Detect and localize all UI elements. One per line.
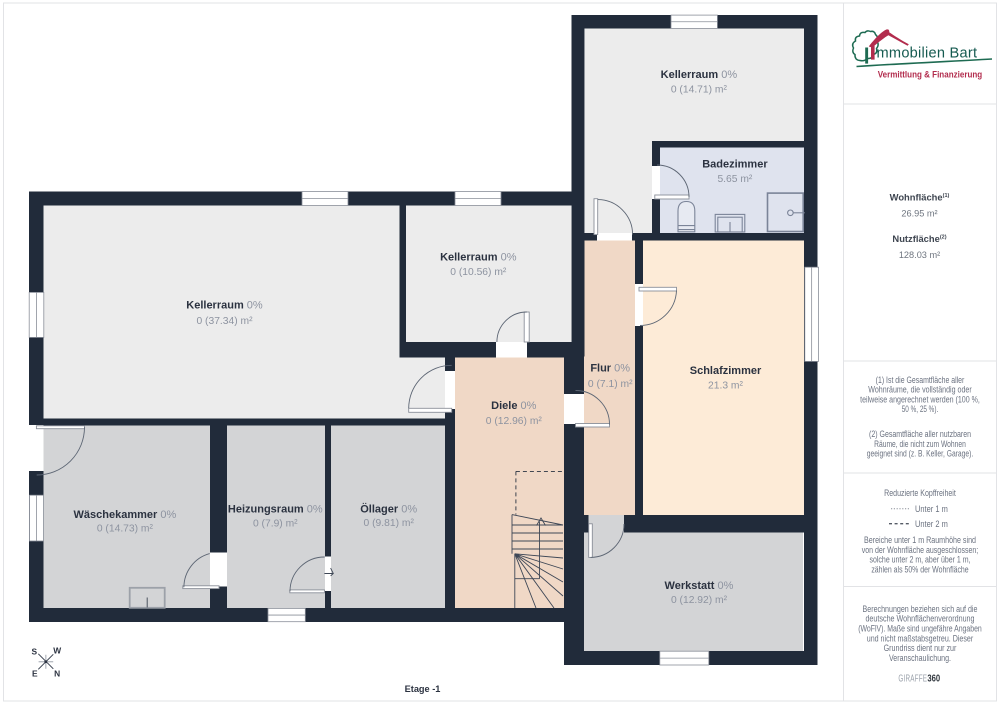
svg-text:Schlafzimmer: Schlafzimmer [690, 365, 762, 377]
svg-text:5.65 m²: 5.65 m² [717, 174, 752, 185]
svg-text:N: N [54, 668, 60, 678]
svg-text:(WoFlV). Maße sind ungefähre A: (WoFlV). Maße sind ungefähre Angaben [858, 624, 982, 634]
svg-text:0 (37.34) m²: 0 (37.34) m² [196, 316, 253, 327]
svg-text:Werkstatt 0%: Werkstatt 0% [665, 580, 734, 592]
svg-text:0 (7.1) m²: 0 (7.1) m² [588, 379, 633, 390]
svg-text:E: E [32, 668, 38, 678]
svg-text:W: W [53, 645, 61, 655]
svg-text:deutsche Wohnflächenverordnung: deutsche Wohnflächenverordnung [865, 614, 974, 624]
svg-text:S: S [32, 646, 38, 656]
svg-text:mmobilien Bart: mmobilien Bart [877, 46, 978, 62]
svg-text:0 (10.56) m²: 0 (10.56) m² [450, 267, 507, 278]
svg-text:Berechnungen beziehen sich auf: Berechnungen beziehen sich auf die [863, 604, 978, 614]
svg-text:Vermittlung & Finanzierung: Vermittlung & Finanzierung [878, 70, 983, 81]
svg-text:Unter 1 m: Unter 1 m [915, 504, 948, 514]
svg-text:50 %, 25 %).: 50 %, 25 %). [902, 404, 939, 414]
svg-text:Flur 0%: Flur 0% [590, 363, 630, 375]
svg-text:Öllager 0%: Öllager 0% [360, 502, 417, 515]
svg-text:Grundriss dient nur zur: Grundriss dient nur zur [884, 643, 957, 653]
svg-text:solche unter 2 m, aber über 1: solche unter 2 m, aber über 1 m, [870, 555, 971, 565]
svg-text:Wohnräume, die vollständig ode: Wohnräume, die vollständig oder [868, 385, 971, 395]
svg-text:Wohnfläche(1): Wohnfläche(1) [890, 191, 950, 202]
svg-text:360: 360 [927, 674, 940, 685]
svg-text:(1) Ist die Gesamtfläche aller: (1) Ist die Gesamtfläche aller [876, 375, 965, 385]
svg-text:0 (9.81) m²: 0 (9.81) m² [364, 518, 415, 529]
svg-text:von der Wohnfläche ausgeschlos: von der Wohnfläche ausgeschlossen; [862, 545, 979, 555]
svg-text:Nutzfläche(2): Nutzfläche(2) [892, 233, 946, 244]
svg-text:21.3 m²: 21.3 m² [708, 380, 743, 391]
svg-text:und nicht maßstabsgetreu. Dies: und nicht maßstabsgetreu. Dieser [867, 633, 974, 643]
svg-text:Badezimmer: Badezimmer [702, 159, 768, 171]
svg-text:Wäschekammer 0%: Wäschekammer 0% [74, 509, 177, 521]
svg-text:Bereiche unter 1 m Raumhöhe si: Bereiche unter 1 m Raumhöhe sind [864, 535, 976, 545]
svg-text:Reduzierte Kopffreiheit: Reduzierte Kopffreiheit [884, 488, 956, 498]
svg-text:geeignet sind (z. B. Keller, G: geeignet sind (z. B. Keller, Garage). [867, 449, 974, 459]
svg-text:Heizungsraum 0%: Heizungsraum 0% [228, 503, 323, 515]
svg-text:zählen als 50% der Wohnfläche: zählen als 50% der Wohnfläche [871, 565, 968, 575]
svg-text:0 (7.9) m²: 0 (7.9) m² [253, 519, 298, 530]
svg-text:(2) Gesamtfläche aller nutzbar: (2) Gesamtfläche aller nutzbaren [869, 429, 971, 439]
svg-text:26.95 m²: 26.95 m² [901, 208, 937, 218]
svg-text:0 (12.96) m²: 0 (12.96) m² [486, 416, 543, 427]
svg-text:Unter 2 m: Unter 2 m [915, 519, 948, 529]
svg-text:Kellerraum 0%: Kellerraum 0% [440, 251, 517, 263]
svg-text:128.03 m²: 128.03 m² [899, 250, 940, 260]
svg-text:GIRAFFE: GIRAFFE [898, 674, 927, 685]
svg-text:Veranschaulichung.: Veranschaulichung. [889, 653, 951, 663]
svg-text:0 (14.71) m²: 0 (14.71) m² [671, 84, 728, 95]
svg-text:Räume, die nicht zum Wohnen: Räume, die nicht zum Wohnen [874, 439, 966, 449]
svg-text:0 (12.92) m²: 0 (12.92) m² [671, 595, 728, 606]
svg-text:Kellerraum 0%: Kellerraum 0% [661, 69, 738, 81]
svg-text:Kellerraum 0%: Kellerraum 0% [186, 299, 263, 311]
svg-text:Diele 0%: Diele 0% [491, 400, 536, 412]
svg-text:teilweise angerechnet werden (: teilweise angerechnet werden (100 %, [860, 394, 980, 404]
svg-text:0 (14.73) m²: 0 (14.73) m² [97, 524, 154, 535]
svg-text:Etage -1: Etage -1 [405, 684, 441, 694]
